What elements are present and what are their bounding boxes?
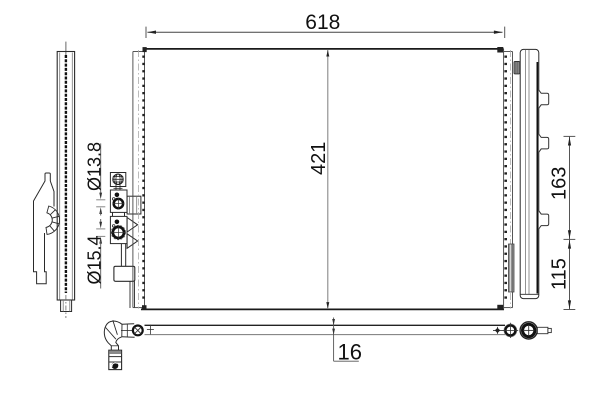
svg-text:163: 163	[549, 167, 571, 200]
svg-text:16: 16	[338, 340, 362, 365]
svg-text:115: 115	[549, 258, 571, 290]
svg-text:421: 421	[308, 142, 330, 175]
svg-text:Ø13.8: Ø13.8	[84, 142, 104, 191]
svg-text:Ø15.4: Ø15.4	[84, 235, 104, 284]
svg-text:618: 618	[305, 11, 340, 34]
